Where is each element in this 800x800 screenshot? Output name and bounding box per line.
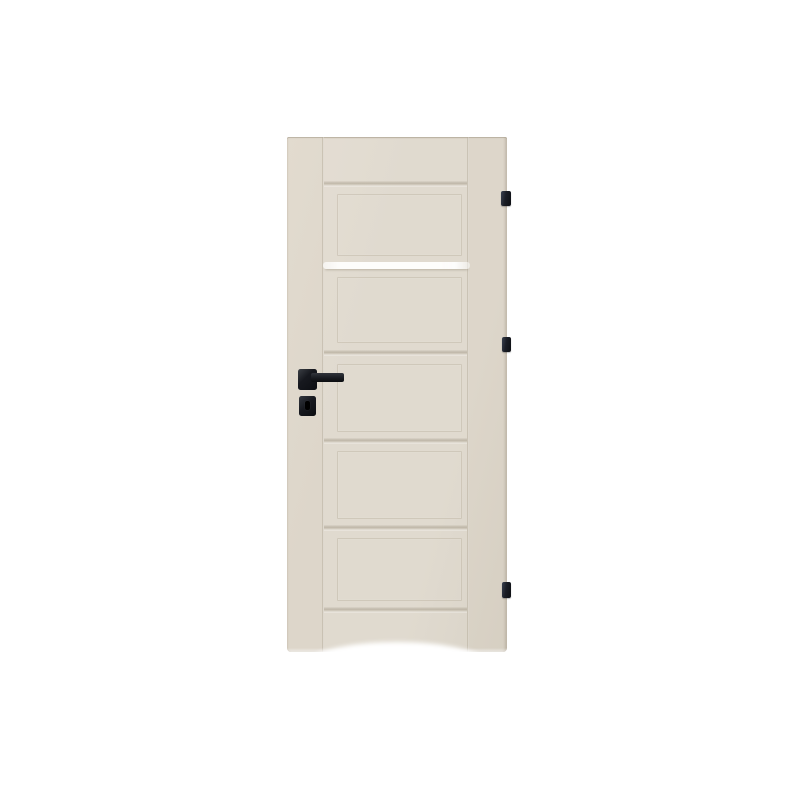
stile-groove-left	[322, 137, 324, 652]
hinge-top	[501, 191, 511, 206]
glass-stripe	[323, 262, 470, 269]
bottom-edge-fade	[287, 648, 507, 652]
keyhole	[305, 401, 310, 410]
panel-inset-frame	[337, 194, 462, 256]
key-escutcheon	[299, 396, 316, 416]
stile-groove-right	[467, 137, 469, 652]
panel-groove-2	[324, 350, 467, 356]
door-leaf	[287, 137, 507, 652]
hinge-bottom	[502, 582, 511, 598]
interior-door	[287, 137, 507, 652]
panel-groove-4	[324, 525, 467, 531]
panel-groove-3	[324, 438, 467, 444]
panel-groove-1	[324, 181, 467, 187]
hinge-middle	[502, 337, 511, 352]
panel-inset-frame	[337, 364, 462, 432]
panel-inset-frame	[337, 277, 462, 343]
product-photo	[0, 0, 800, 800]
handle-lever	[311, 373, 344, 382]
panel-inset-frame	[337, 538, 462, 601]
panel-inset-frame	[337, 451, 462, 519]
panel-groove-5	[324, 607, 467, 613]
